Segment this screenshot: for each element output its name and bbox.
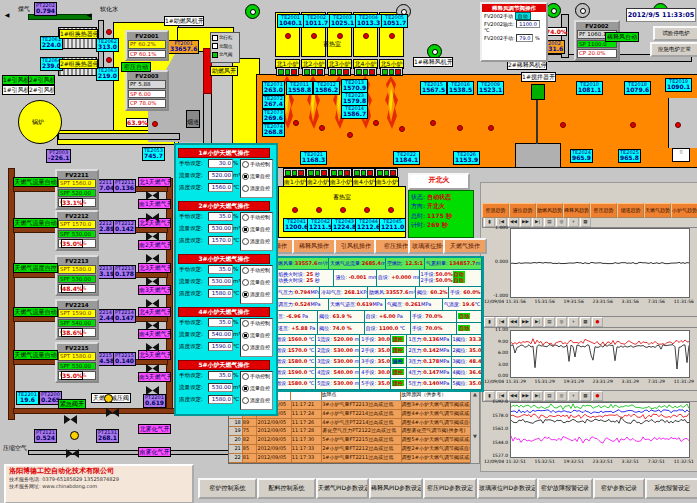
alarm-cell: 2012/09/05: [257, 463, 291, 464]
valve-position-box: 33.1%: [61, 198, 83, 207]
indicator-lamp: [377, 170, 383, 176]
radio-label: 温度自控: [250, 291, 270, 297]
controller-tag: FV2001: [128, 33, 166, 39]
value-text: 1538.5: [449, 87, 472, 93]
chart-toolbar-icon[interactable]: ◀◀: [508, 217, 519, 227]
popup-radio-group: 手动控制流量自控温度自控: [240, 159, 273, 198]
status-row: 计时: 269 秒: [411, 220, 471, 229]
fan-icon: [546, 3, 561, 18]
label-: 烟道: [183, 118, 203, 126]
alarm-point-dot: [293, 120, 299, 126]
chart-toolbar-icon[interactable]: +: [568, 317, 579, 327]
te2022-indicator: TE20221184.1: [393, 151, 420, 165]
popup-field-input[interactable]: 35.0: [208, 265, 233, 274]
alarm-cell: 81: [243, 454, 258, 462]
te2053-indicator: TE2053745.7: [142, 147, 165, 161]
te2012-indicator: TE20121586.2: [313, 81, 340, 95]
radio-icon[interactable]: [242, 214, 249, 221]
fv2001-controller[interactable]: FV2001PF 60.2%CP 60.1%: [125, 30, 169, 61]
chart-xtick: 15:32:51: [535, 459, 555, 464]
chart-plot-2[interactable]: [510, 402, 690, 458]
chart-toolbar-icon[interactable]: ◎: [556, 317, 567, 327]
ops-button-1[interactable]: 稀释风操作: [292, 238, 336, 254]
indicator-lamp: [285, 170, 291, 176]
radio-label: 流量自控: [250, 332, 270, 338]
label-: ◀: [84, 11, 94, 19]
te2015-indicator: TE20151567.5: [420, 81, 447, 95]
te2201-indicator: TE220119.6: [16, 391, 39, 405]
dilution-row2-input[interactable]: 79.0: [516, 34, 533, 42]
info-cell: 1流设: 520.00 m³/h: [316, 335, 360, 345]
value-text: 268.1: [98, 435, 117, 441]
alarm-header-cell: 故障点: [322, 391, 402, 400]
system-button-3[interactable]: 稀释风PID参数设定: [369, 478, 423, 499]
ops-button-5[interactable]: 天燃气操作: [443, 238, 487, 254]
popup-field-input[interactable]: 1580.0: [208, 289, 233, 298]
alarm-point-dot: [316, 207, 322, 213]
info-row: 5温设:1580.0 ℃5流设: 530.00 m³/h5手设: 35.0%流控…: [272, 379, 482, 390]
popup-field-label: 流量设定:: [179, 331, 203, 338]
radio-icon[interactable]: [242, 332, 249, 339]
flue-pipe: [58, 133, 180, 140]
burner-indicator-north[interactable]: [302, 67, 325, 76]
controller-row: PF 60.2%: [128, 40, 166, 49]
alarm-cell: 85: [243, 445, 258, 453]
info-cell: 冷却气压: 268.1KPa: [320, 287, 368, 298]
fan-icon: [245, 4, 260, 19]
value-text: 745.7: [144, 153, 163, 159]
burner-indicator-south[interactable]: [306, 168, 329, 177]
info-cell: 2手设: 35.0%: [360, 346, 390, 356]
info-cell: 3阀位: 48.4%: [452, 357, 482, 367]
value-text: 1200.6: [285, 224, 308, 230]
indicator-lamp: [331, 170, 337, 176]
chart-ytick: 1592.0: [484, 399, 508, 404]
value-text: 0.524: [36, 435, 55, 441]
value-text: 1090.1: [667, 84, 690, 90]
info-cell: 2阀位: 35.0%: [452, 346, 482, 356]
radio-icon[interactable]: [242, 185, 249, 192]
value-text: 1567.5: [422, 87, 445, 93]
radio-icon[interactable]: [242, 291, 249, 298]
controller-tag: FV2215: [58, 345, 96, 351]
trend-button-0[interactable]: 窑温趋势: [482, 203, 509, 218]
value-text: 965.8: [620, 155, 639, 161]
te2021-indicator: TE20211168.3: [300, 151, 327, 165]
te2018-indicator: TE20181079.6: [624, 81, 651, 95]
system-button-4[interactable]: 窑压PID参数设定: [423, 478, 477, 499]
chart-toolbar-icon[interactable]: ▶▶: [520, 217, 531, 227]
alarm-cell: 2012/09/05: [257, 419, 291, 427]
popup-section-1: 1#小炉天燃气操作手动设定:30.0%流量设定:520.00m³/h温度设定:1…: [178, 148, 270, 198]
trend-button-2[interactable]: 助燃风趋势: [536, 203, 563, 218]
popup-field-input[interactable]: 1560.0: [208, 183, 233, 192]
valve-icon: [146, 315, 159, 334]
chart-ytick: 1578.0: [484, 413, 508, 418]
popup-field-input[interactable]: 35.0: [208, 212, 233, 221]
radio-icon[interactable]: [242, 397, 249, 404]
value-text: 1212.6: [357, 224, 380, 230]
popup-field-input[interactable]: 520.00: [208, 171, 233, 180]
popup-field-input[interactable]: 540.00: [208, 330, 233, 339]
popup-field-unit: ℃: [233, 396, 239, 402]
fv2003-controller[interactable]: FV2003PF 5.88SP 6.00CP 78.0%: [125, 70, 169, 111]
controller-row: SPF 530.00: [58, 362, 96, 371]
te2014-indicator: TE20141586.7: [341, 105, 368, 119]
ops-button-2[interactable]: 引风机操作: [334, 238, 378, 254]
alarm-cell: 11:17:33: [292, 454, 322, 462]
info-cell: 3温设:1580.0 ℃: [272, 357, 316, 367]
te2013-indicator: TE20131570.9: [341, 79, 368, 93]
indicator-lamp: [278, 69, 284, 75]
system-button-0[interactable]: 窑炉控制系统: [198, 478, 257, 499]
popup-field-label: 手动设定:: [179, 319, 203, 326]
chart-toolbar-icon[interactable]: |◀: [496, 317, 507, 327]
te2024-indicator: TE2024965.9: [570, 149, 593, 163]
popup-field-label: 流量设定:: [179, 384, 203, 391]
valve-icon: [146, 380, 159, 399]
popup-section-title: 2#小炉天燃气操作: [178, 201, 270, 211]
chart-toolbar-icon[interactable]: ▦: [580, 317, 591, 327]
dilution-row1-unit: ℃: [484, 27, 490, 33]
label-: 软化水: [96, 5, 122, 13]
popup-radio-2[interactable]: 温度自控: [242, 397, 270, 404]
system-button-5[interactable]: 玻璃液位PID参数设定: [477, 478, 537, 499]
trend-button-7[interactable]: 小炉气趋势: [671, 203, 697, 218]
te2026-indicator: TE20261153.9: [453, 151, 480, 165]
datetime-text: 2012/9/5 11:33:05: [628, 11, 694, 19]
value-text: 0.794: [36, 8, 55, 14]
trend-button-1[interactable]: 液位趋势: [509, 203, 536, 218]
label-: 紧急阀开: [58, 399, 86, 409]
controller-row: SPF 530.00: [58, 230, 96, 239]
chart-toolbar-icon[interactable]: ▶|: [532, 217, 543, 227]
chart-toolbar-icon[interactable]: ▶▶: [520, 317, 531, 327]
info-cell: 自设: +6.00 Pa: [365, 311, 411, 322]
chart-toolbar-icon[interactable]: ▶▶: [520, 391, 531, 401]
chart-xtick: 11:31:29: [674, 379, 694, 384]
popup-field-unit: %: [233, 319, 238, 325]
burner-label-south: 南2小炉: [306, 177, 330, 187]
chart-toolbar-icon[interactable]: +: [568, 391, 579, 401]
valve-icon: [146, 337, 159, 356]
popup-section-2: 2#小炉天燃气操作手动设定:35.0%流量设定:530.00m³/h温度设定:1…: [178, 201, 270, 251]
label-: 北雾化气开: [138, 424, 171, 434]
controller-row: SPT 1570.0: [58, 220, 96, 229]
chart-xtick: 11:32:51: [674, 459, 694, 464]
label-1#PF500Hz: 1#引风机 PF 50.0Hz: [2, 85, 29, 95]
radio-icon[interactable]: [242, 373, 249, 380]
alarm-row[interactable]: 18892012/09/0511:17:264#小炉气压PT2214过高或过低调…: [229, 419, 479, 428]
alarm-cell: 11:17:33: [292, 445, 322, 453]
alarm-cell: 21: [229, 445, 243, 453]
chart-toolbar-icon[interactable]: ▶|: [532, 391, 543, 401]
chart-stop-icon[interactable]: ●: [592, 391, 603, 401]
fan-hub: [432, 49, 438, 55]
chart-toolbar-icon[interactable]: ◀◀: [508, 317, 519, 327]
company-web: 技术服务网址: www.chinabdong.com: [9, 483, 189, 490]
test-power-furnace-button[interactable]: 试验停电炉: [653, 26, 697, 41]
radio-icon[interactable]: [242, 238, 249, 245]
controller-row: SPT 1560.0: [58, 179, 96, 188]
burner-indicator-south[interactable]: [329, 168, 352, 177]
info-cell: 煤气压力:0.794MPa: [272, 287, 320, 298]
chart-toolbar-icon[interactable]: ◎: [556, 391, 567, 401]
popup-section-5: 5#小炉天燃气操作手动设定:35.0%流量设定:530.00m³/h温度设定:1…: [178, 360, 270, 410]
chart-stop-icon[interactable]: ●: [592, 317, 603, 327]
popup-radio-2[interactable]: 温度自控: [242, 238, 270, 245]
chart-toolbar-icon[interactable]: ▮: [484, 317, 495, 327]
chart-xtick: 19:32:51: [564, 459, 584, 464]
value-text: 1153.9: [455, 157, 478, 163]
radio-icon[interactable]: [242, 279, 249, 286]
popup-field-label: 温度设定:: [179, 237, 203, 244]
info-cell: 3压力:0.178MPa: [407, 357, 451, 367]
chart-toolbar-icon[interactable]: ◀◀: [508, 391, 519, 401]
alarm-point-dot: [340, 207, 346, 213]
trend-button-4[interactable]: 窑压趋势: [590, 203, 617, 218]
info-cell: 气调压力:0.524MPa: [272, 299, 329, 310]
popup-radio-1[interactable]: 流量自控: [242, 385, 270, 392]
alarm-point-dot: [364, 207, 370, 213]
alarm-cell: 11:17:26: [292, 419, 322, 427]
alarm-row[interactable]: 19752012/09/0511:17:28雾化空气压力PT2122过高或过低调…: [229, 427, 479, 436]
pt2215-indicator: PT22150.140: [113, 352, 136, 366]
indicator-lamp: [356, 69, 362, 75]
popup-field-label: 手动设定:: [179, 160, 203, 167]
info-cell: 2流设: 530.00 m³/h: [316, 346, 360, 356]
throat-box: ⠿: [672, 148, 690, 162]
popup-field-input[interactable]: 1590.0: [208, 342, 233, 351]
popup-radio-2[interactable]: 温度自控: [242, 344, 270, 351]
popup-radio-1[interactable]: 流量自控: [242, 226, 270, 233]
label-: 蓄热室: [330, 193, 354, 201]
info-cell: 3手设: 35.0%: [360, 357, 390, 367]
fire-north-button[interactable]: 开北火: [408, 173, 470, 190]
popup-field-input[interactable]: 35.0: [208, 318, 233, 327]
alarm-cell: 11:17:30: [292, 436, 322, 444]
controller-row: SPF 540.00: [58, 319, 96, 328]
burner-indicator-north[interactable]: [380, 67, 403, 76]
info-cell: 流控: [391, 346, 408, 356]
radio-icon[interactable]: [242, 267, 249, 274]
controller-row: SPT 1580.0: [58, 265, 96, 274]
indicator-lamp: [298, 170, 304, 176]
alarm-row[interactable]: 22812012/09/0511:17:331#小炉气量FT2211过高或过低调…: [229, 454, 479, 463]
valve-actuator-icon: [70, 431, 79, 440]
alarm-point-dot: [106, 29, 112, 35]
te2001-indicator: TE20011040.1: [277, 14, 304, 28]
label-1#: 1#搅拌器开: [521, 72, 556, 82]
indicator-lamp: [291, 69, 297, 75]
info-cell: 阀位: 74.0 %: [318, 323, 364, 334]
popup-field-input[interactable]: 1580.0: [208, 395, 233, 404]
gas-trunk-pipe: [8, 168, 15, 420]
radio-label: 流量自控: [250, 173, 270, 179]
info-cell: 5压力:0.140MPa: [407, 379, 451, 389]
popup-radio-0[interactable]: 手动控制: [242, 267, 270, 274]
burner-indicator-north[interactable]: [354, 67, 377, 76]
chart-toolbar-icon[interactable]: ▤: [544, 217, 555, 227]
chart-plot-1[interactable]: [510, 330, 690, 378]
radio-label: 流量自控: [250, 385, 270, 391]
value-text: 1211.0: [381, 224, 404, 230]
controller-row: CP 78.0%: [128, 99, 166, 108]
alarm-cell: 4#小炉气压PT2214过高或过低: [322, 419, 401, 427]
chart-ytick: 1.000: [484, 225, 508, 230]
chart-xtick: 23:31:56: [593, 299, 613, 304]
burner-label-south: 南3小炉: [329, 177, 353, 187]
dilution-mode-value[interactable]: 自动: [515, 12, 531, 20]
burner-indicator-north[interactable]: [276, 67, 299, 76]
valve-icon: [146, 293, 159, 312]
indicator-lamp: [330, 69, 336, 75]
info-cell: 流控: [391, 368, 408, 378]
burner-indicator-south[interactable]: [375, 168, 398, 177]
radio-icon[interactable]: [242, 161, 249, 168]
indicator-lamp: [308, 170, 314, 176]
chart-ytick: 9.00: [484, 339, 508, 344]
alarm-point-dot: [106, 57, 112, 63]
system-button-8[interactable]: 系统报警设定: [645, 478, 697, 499]
alarm-cell: 3#小炉气量FT2213过高或过低: [322, 401, 401, 409]
controller-row: SP 6.00: [128, 90, 166, 99]
info-cell: 流控: [391, 335, 408, 345]
popup-radio-0[interactable]: 手动控制: [242, 161, 270, 168]
alarm-cell: 89: [243, 419, 258, 427]
popup-field-input[interactable]: 530.00: [208, 277, 233, 286]
popup-field-input[interactable]: 30.0: [208, 159, 233, 168]
burner-indicator-south[interactable]: [283, 168, 306, 177]
system-button-6[interactable]: 窑炉故障报警记录: [537, 478, 593, 499]
popup-radio-1[interactable]: 流量自控: [242, 173, 270, 180]
popup-radio-0[interactable]: 手动控制: [242, 320, 270, 327]
indicator-lamp: [344, 170, 350, 176]
radio-icon[interactable]: [242, 385, 249, 392]
system-button-1[interactable]: 配料控制系统: [257, 478, 316, 499]
burner-gas-popup: 1#小炉天燃气操作手动设定:30.0%流量设定:520.00m³/h温度设定:1…: [174, 143, 278, 416]
indicator-lamp: [343, 69, 349, 75]
burner-label-south: 南5小炉: [375, 177, 399, 187]
chart-xtick: 19:31:29: [564, 379, 584, 384]
pt2214-indicator: PT22140.147: [113, 309, 136, 323]
info-cell: 自设: +0.000 mm: [377, 270, 420, 286]
chart-toolbar-icon[interactable]: ▦: [580, 217, 591, 227]
alarm-cell: 3#小炉气量FT2213过高或过低: [322, 463, 401, 464]
popup-field-input[interactable]: 1570.0: [208, 236, 233, 245]
trend-button-6[interactable]: 天燃气趋势: [644, 203, 671, 218]
valve-icon: [146, 207, 159, 226]
info-cell: 天燃气总流量:2685.4m³/h: [329, 258, 386, 269]
alarm-row[interactable]: 20822012/09/0511:17:305#小炉气量FT2215过高或过低调…: [229, 436, 479, 445]
chart-toolbar-icon[interactable]: ◎: [556, 217, 567, 227]
value-text: 1011.7: [305, 20, 328, 26]
stirrer-shaft: [536, 100, 538, 144]
valve-position-box: 63.9%: [126, 118, 148, 127]
value-text: 0.136: [115, 185, 134, 191]
alarm-row[interactable]: 21852012/09/0511:17:332#小炉气量FT2212过高或过低调…: [229, 445, 479, 454]
alarm-row[interactable]: ▶23832012/09/0511:17:333#小炉气量FT2213过高或过低…: [229, 463, 479, 464]
chart-plot-0[interactable]: [510, 228, 690, 298]
indicator-lamp: [363, 69, 369, 75]
radio-icon[interactable]: [242, 344, 249, 351]
popup-radio-0[interactable]: 手动控制: [242, 214, 270, 221]
chart-toolbar-icon[interactable]: ▶|: [532, 317, 543, 327]
popup-radio-group: 手动控制流量自控温度自控: [240, 371, 273, 410]
popup-radio-1[interactable]: 流量自控: [242, 332, 270, 339]
radio-icon[interactable]: [242, 320, 249, 327]
label-1#: 1#引风机开: [2, 75, 29, 85]
popup-radio-0[interactable]: 手动控制: [242, 373, 270, 380]
info-cell: 5手设: 35.0%: [360, 379, 390, 389]
trend-button-3[interactable]: 稀释风趋势: [563, 203, 590, 218]
te2002-indicator: TE20021011.7: [303, 14, 330, 28]
emergency-furnace-button[interactable]: 应急电炉正常: [650, 42, 697, 57]
chart-toolbar-icon[interactable]: ▤: [544, 317, 555, 327]
popup-field-input[interactable]: 35.0: [208, 371, 233, 380]
process-info-panel: 助燃风量:33557.6m³/h天燃气总流量:2685.4m³/h空燃比: 12…: [270, 256, 484, 392]
alarm-scrollbar[interactable]: ▲▼: [470, 390, 480, 464]
info-cell: 1手设:50.0%自动2手设:50.0%自动: [420, 270, 482, 286]
chart-xtick: 3:32:51: [622, 459, 639, 464]
legend-swatch: [212, 35, 218, 41]
radio-icon[interactable]: [242, 173, 249, 180]
popup-radio-1[interactable]: 流量自控: [242, 279, 270, 286]
system-button-2[interactable]: 天燃气PID参数设定: [316, 478, 369, 499]
pt2211-indicator: PT22110.136: [113, 179, 136, 193]
popup-field-label: 温度设定:: [179, 184, 203, 191]
dilution-row2-label: FV2002手动:: [484, 35, 515, 41]
popup-field-input[interactable]: 530.00: [208, 383, 233, 392]
chart-toolbar-icon[interactable]: +: [568, 217, 579, 227]
value-text: 1558.8: [288, 87, 311, 93]
chart-toolbar-icon[interactable]: ▤: [544, 391, 555, 401]
alarm-cell: 调整2#小炉天燃气调节阀或自动阀门: [402, 445, 479, 453]
alarm-point-dot: [292, 207, 298, 213]
system-button-7[interactable]: 窑炉参数记录: [593, 478, 645, 499]
trend-button-5[interactable]: 烟道趋势: [617, 203, 644, 218]
te2074-indicator: TE2074268.8: [262, 123, 285, 137]
popup-section-title: 3#小炉天燃气操作: [178, 254, 270, 264]
chart-xtick: 3:31:56: [622, 299, 639, 304]
label-2#: 2#组换热器停: [59, 59, 98, 69]
popup-radio-2[interactable]: 温度自控: [242, 185, 270, 192]
value-text: 268.8: [264, 129, 283, 135]
legend-label: 北限位: [219, 44, 233, 49]
indicator-lamp: [395, 69, 401, 75]
popup-field-label: 温度设定:: [179, 396, 203, 403]
alarm-cell: 11:17:24: [292, 410, 322, 418]
radio-icon[interactable]: [242, 226, 249, 233]
dilution-row1-input[interactable]: 1100.0: [516, 20, 540, 28]
alarm-cell: 2012/09/05: [257, 436, 291, 444]
info-row: 3温设:1580.0 ℃3流设: 530.00 m³/h3手设: 35.0%温控…: [272, 357, 482, 368]
controller-row: PF 5.88: [128, 80, 166, 89]
indicator-lamp: [390, 170, 396, 176]
burner-indicator-south[interactable]: [352, 168, 375, 177]
alarm-point-dot: [373, 120, 379, 126]
te2019-indicator: TE20191090.1: [665, 78, 692, 92]
alarm-cell: 4#小炉气量FT2214过高或过低: [322, 410, 401, 418]
te2073-indicator: TE2073269.6: [262, 109, 285, 123]
chart-toolbar-icon[interactable]: ▦: [580, 391, 591, 401]
burner-indicator-north[interactable]: [328, 67, 351, 76]
controller-tag: FV2213: [58, 258, 96, 264]
popup-field-input[interactable]: 530.00: [208, 224, 233, 233]
popup-field-label: 手动设定:: [179, 372, 203, 379]
popup-radio-2[interactable]: 温度自控: [242, 291, 270, 298]
value-text: 1586.7: [343, 111, 366, 117]
